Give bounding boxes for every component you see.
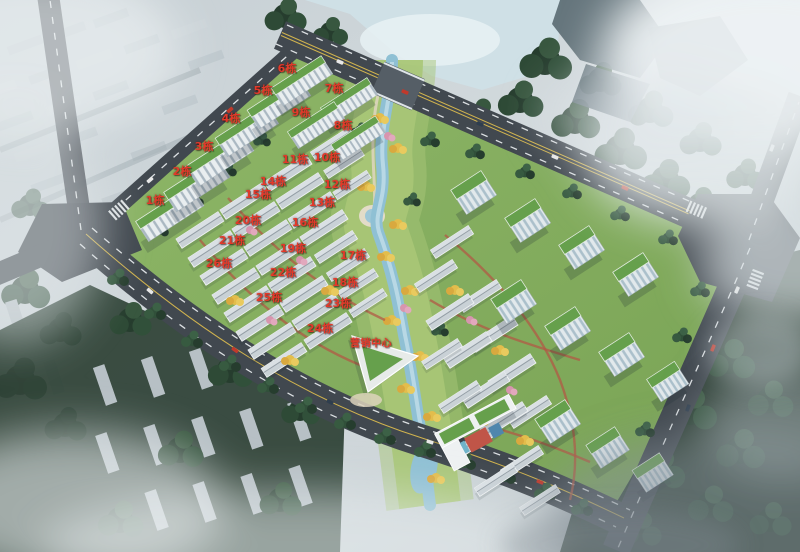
aerial-rendering-scene: 1栋2栋3栋4栋5栋6栋7栋8栋9栋10栋11栋12栋13栋14栋15栋16栋1… bbox=[0, 0, 800, 552]
aerial-rendering-image bbox=[0, 0, 800, 552]
